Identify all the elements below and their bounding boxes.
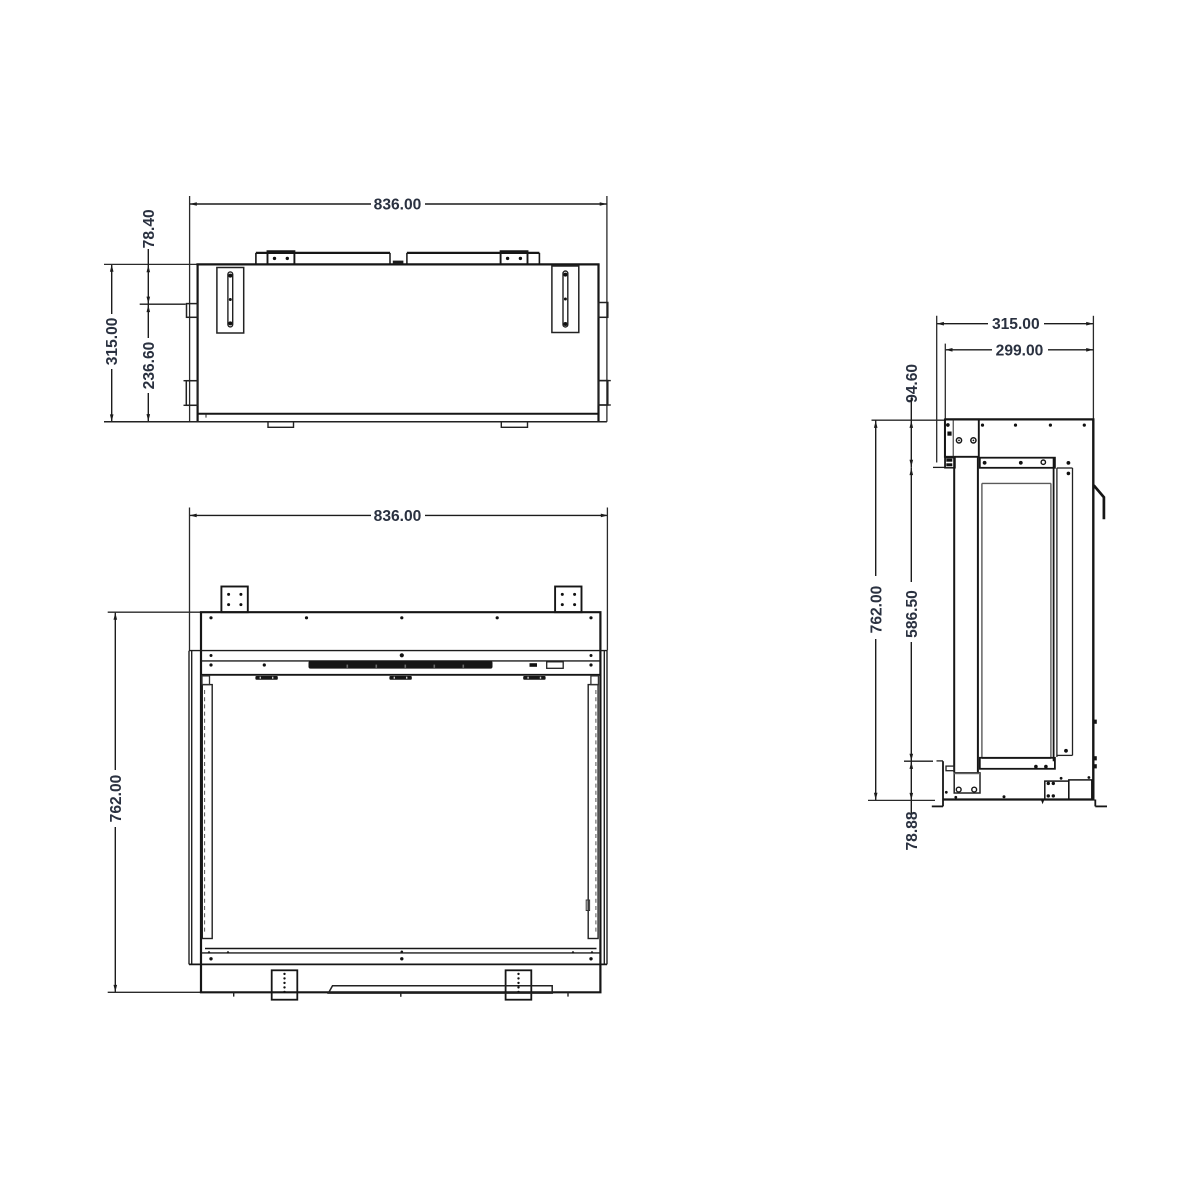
svg-text:299.00: 299.00 <box>996 342 1044 359</box>
svg-text:586.50: 586.50 <box>904 590 921 638</box>
svg-text:762.00: 762.00 <box>868 585 885 633</box>
svg-text:94.60: 94.60 <box>904 364 921 403</box>
svg-text:315.00: 315.00 <box>104 317 121 365</box>
svg-text:236.60: 236.60 <box>141 341 158 389</box>
svg-text:78.88: 78.88 <box>904 811 921 850</box>
svg-text:762.00: 762.00 <box>108 774 125 822</box>
svg-text:315.00: 315.00 <box>992 316 1040 333</box>
svg-text:78.40: 78.40 <box>141 209 158 248</box>
svg-text:836.00: 836.00 <box>374 197 422 214</box>
svg-text:836.00: 836.00 <box>374 508 422 525</box>
